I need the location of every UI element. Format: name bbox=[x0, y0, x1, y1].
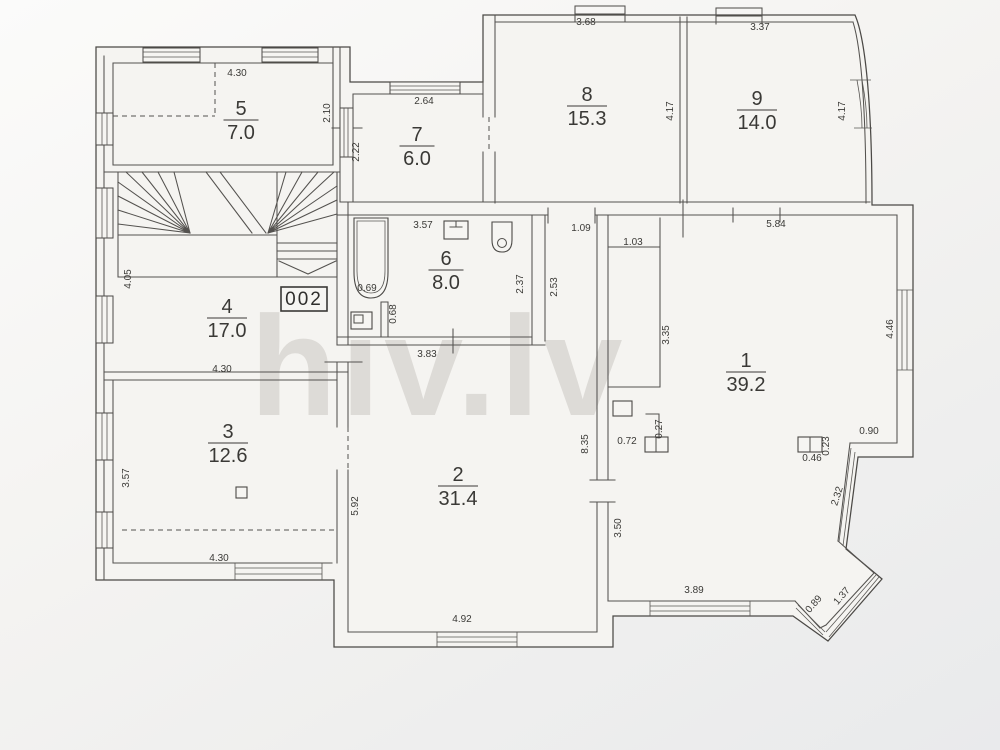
room-number: 8 bbox=[581, 84, 592, 106]
room-area: 39.2 bbox=[727, 374, 766, 396]
unit-label-text: 002 bbox=[285, 289, 323, 310]
room-area: 6.0 bbox=[403, 148, 431, 170]
flue-square bbox=[236, 487, 247, 498]
dimension-label: 2.37 bbox=[515, 274, 526, 294]
floor-plan-drawing: hiv.lv bbox=[0, 0, 1000, 750]
dimension-label: 0.68 bbox=[388, 304, 399, 324]
dimension-label: 4.30 bbox=[209, 553, 229, 564]
dimension-label: 0.90 bbox=[859, 426, 879, 437]
room-area: 17.0 bbox=[208, 320, 247, 342]
room-area: 7.0 bbox=[227, 122, 255, 144]
dimension-label: 1.09 bbox=[571, 223, 591, 234]
dimension-label: 2.22 bbox=[351, 142, 362, 162]
window bbox=[390, 82, 460, 94]
room-area: 15.3 bbox=[568, 108, 607, 130]
dimension-label: 4.05 bbox=[123, 269, 134, 289]
dimension-label: 8.35 bbox=[580, 434, 591, 454]
room-area: 8.0 bbox=[432, 272, 460, 294]
dimension-label: 0.72 bbox=[617, 436, 637, 447]
room-number: 3 bbox=[222, 421, 233, 443]
dimension-label: 2.10 bbox=[322, 103, 333, 123]
dimension-label: 0.23 bbox=[821, 436, 832, 456]
room-number: 5 bbox=[235, 98, 246, 120]
room-number: 6 bbox=[440, 248, 451, 270]
dimension-label: 0.69 bbox=[357, 283, 377, 294]
room-area: 31.4 bbox=[439, 488, 478, 510]
window bbox=[96, 296, 113, 343]
dimension-label: 0.27 bbox=[654, 419, 665, 439]
room-number: 7 bbox=[411, 124, 422, 146]
dimension-label: 3.37 bbox=[750, 22, 770, 33]
dimension-label: 4.92 bbox=[452, 614, 472, 625]
dimension-label: 3.57 bbox=[121, 468, 132, 488]
dimension-label: 3.35 bbox=[661, 325, 672, 345]
dimension-label: 2.53 bbox=[549, 277, 560, 297]
unit-label: 002 bbox=[281, 287, 327, 311]
dimension-label: 3.50 bbox=[613, 518, 624, 538]
dimension-label: 3.57 bbox=[413, 220, 433, 231]
duct-square bbox=[613, 401, 632, 416]
dimension-label: 2.64 bbox=[414, 96, 434, 107]
dimension-label: 0.46 bbox=[802, 453, 822, 464]
scanned-floor-plan: hiv.lv bbox=[0, 0, 1000, 750]
room-number: 1 bbox=[740, 350, 751, 372]
dimension-label: 4.17 bbox=[837, 101, 848, 121]
dimension-label: 4.30 bbox=[212, 364, 232, 375]
dimension-label: 3.83 bbox=[417, 349, 437, 360]
window bbox=[96, 188, 113, 238]
window bbox=[96, 512, 113, 548]
dimension-label: 5.84 bbox=[766, 219, 786, 230]
room-number: 4 bbox=[221, 296, 232, 318]
room-number: 2 bbox=[452, 464, 463, 486]
window bbox=[143, 48, 200, 62]
dimension-label: 5.92 bbox=[350, 496, 361, 516]
window bbox=[96, 113, 113, 145]
dimension-label: 3.89 bbox=[684, 585, 704, 596]
dimension-label: 4.17 bbox=[665, 101, 676, 121]
dimension-label: 4.30 bbox=[227, 68, 247, 79]
room-area: 14.0 bbox=[738, 112, 777, 134]
room-area: 12.6 bbox=[209, 445, 248, 467]
window bbox=[262, 48, 318, 62]
room-number: 9 bbox=[751, 88, 762, 110]
dimension-label: 4.46 bbox=[885, 319, 896, 339]
dimension-label: 1.03 bbox=[623, 237, 643, 248]
dimension-label: 3.68 bbox=[576, 17, 596, 28]
window bbox=[96, 413, 113, 460]
